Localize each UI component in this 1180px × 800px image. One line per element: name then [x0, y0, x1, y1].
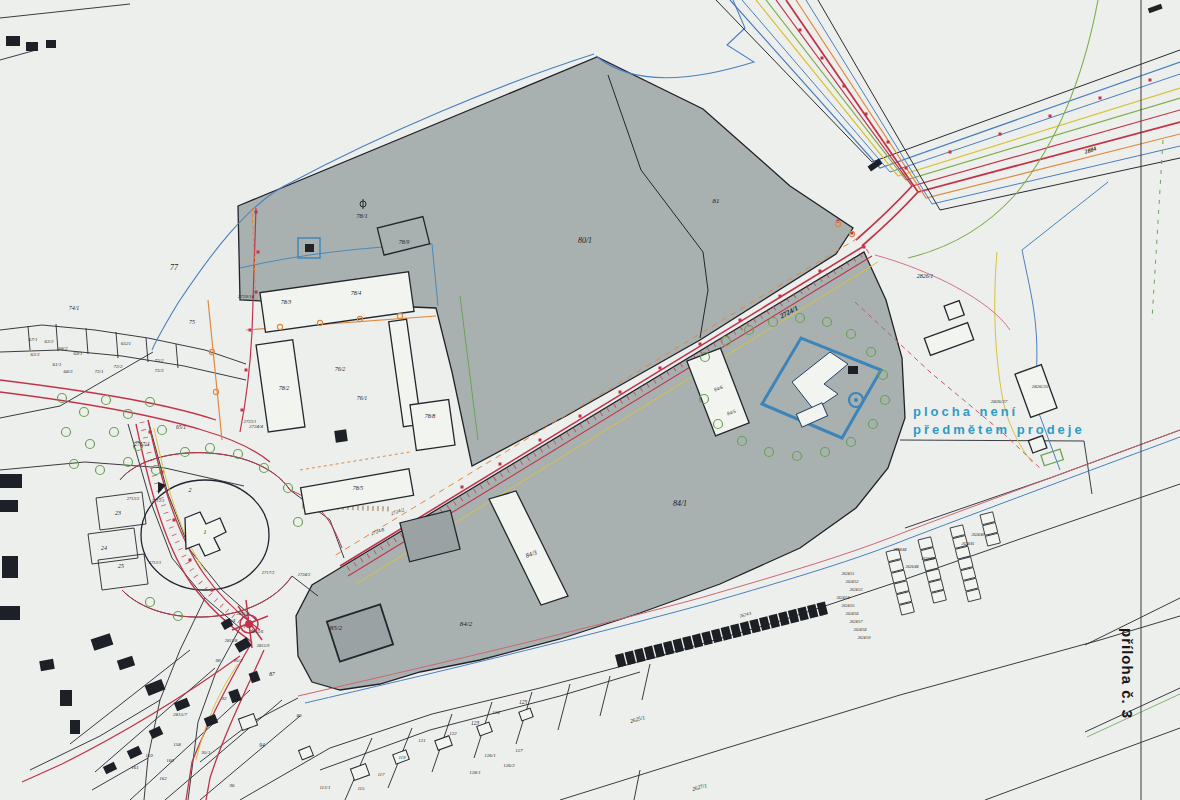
parcel-label: 127	[515, 748, 523, 753]
parcel-label: 2723/1	[244, 419, 257, 424]
utility-post-icon	[819, 270, 822, 273]
parcel-label: 2724/2	[390, 507, 405, 516]
utility-post-icon	[843, 85, 846, 88]
parcel-label: 78/3	[281, 299, 292, 305]
parcel-label: 117	[377, 772, 385, 777]
parcel-label: 73/2	[155, 358, 164, 363]
utility-post-icon	[211, 589, 214, 592]
garage-block	[749, 619, 760, 634]
utility-post-icon	[699, 343, 702, 346]
garage-block	[673, 638, 684, 653]
tree-icon	[96, 466, 105, 475]
utility-post-icon	[255, 291, 258, 294]
building-right-3	[1015, 365, 1057, 418]
utility-post-icon	[257, 251, 260, 254]
parcel-label: 73/1	[95, 369, 104, 374]
parcel-label: 95/2	[234, 658, 243, 663]
building-footprint	[0, 606, 20, 620]
parcel-label: 2627/1	[691, 782, 708, 792]
parcel-label: 90	[216, 658, 222, 663]
corridor-blue-2	[742, 0, 1180, 172]
parcel-label: 123	[471, 720, 480, 726]
parcel-label: 2713/1	[149, 560, 162, 565]
parcel-label: 73/3	[155, 368, 164, 373]
garage-block	[663, 641, 674, 656]
parcel-label: 2717/1	[134, 441, 150, 447]
scan-edge-line	[1140, 0, 1142, 800]
building-right-2	[944, 301, 964, 321]
cadastral-map-scan: 80/1817774/17578/178/92729/1478/378/478/…	[0, 0, 1180, 800]
utility-post-icon	[799, 29, 802, 32]
utility-post-icon	[1099, 97, 1102, 100]
parcel-label: 2624/54	[836, 595, 849, 600]
garage-block	[615, 653, 626, 668]
parcel-label: 2717/3	[262, 570, 275, 575]
parcel-label: 2624/52	[845, 579, 858, 584]
utility-post-icon	[1149, 79, 1152, 82]
utility-post-icon	[161, 471, 164, 474]
parcel-label: 115	[357, 786, 365, 791]
parcel-label: 162	[159, 776, 167, 781]
parcel-label: 74/1	[69, 305, 80, 311]
utility-post-icon	[949, 151, 952, 154]
parcel-label: 2624/44	[893, 547, 906, 552]
parcel-label: 69/1	[74, 351, 83, 356]
parcel-label: 113/1	[319, 785, 330, 790]
not-for-sale-note-line1: plocha není	[913, 404, 1018, 419]
corridor-branch	[856, 186, 918, 246]
parcel-label: 84/2	[460, 620, 473, 628]
parcel-label: 2	[189, 487, 192, 493]
utility-post-icon	[779, 295, 782, 298]
parcel-label: 68/3	[64, 369, 73, 374]
utility-node-icon	[397, 313, 402, 318]
parcel-label: 94	[259, 742, 265, 748]
parcel-label: 125	[519, 699, 528, 705]
parcel-label: 2815/2	[237, 611, 250, 616]
utility-post-icon	[241, 409, 244, 412]
house-outline	[435, 736, 453, 751]
green-right-curve	[908, 0, 1098, 258]
parcel-label: 72/2	[114, 364, 123, 369]
parcel-label: 2815/6	[251, 629, 264, 634]
garage-block	[644, 646, 655, 661]
parcel-label: 78/8	[425, 413, 436, 419]
garage-block	[797, 606, 808, 621]
parcel-label: 2626/49	[921, 556, 934, 561]
parcel-label: 2724/4	[249, 424, 263, 429]
building-footprint	[127, 746, 143, 760]
attachment-number-note: příloha č. 3	[1119, 628, 1136, 719]
parcel-label: 128/1	[469, 770, 480, 775]
parcel-label: 160	[166, 758, 174, 763]
utility-post-icon	[659, 367, 662, 370]
parcel-label: 2724/8	[370, 527, 385, 536]
green-shed	[1041, 449, 1063, 466]
parcel-label: 67/1	[29, 337, 38, 342]
parcel-label: 119	[398, 755, 406, 760]
parcel-label: 76/2	[335, 366, 346, 372]
parcel-label: 2724/3	[298, 572, 311, 577]
utility-post-icon	[149, 431, 152, 434]
parcel-label: 126/2	[503, 763, 515, 768]
boundaries-right	[900, 440, 1092, 494]
utility-post-icon	[619, 391, 622, 394]
parcel-label: 78/4	[351, 290, 362, 296]
building-right-1	[924, 323, 973, 356]
utility-post-icon	[579, 415, 582, 418]
garage-block	[682, 636, 693, 651]
building-right-4	[1028, 436, 1047, 453]
compound-symbol	[848, 366, 858, 374]
garage-block	[788, 609, 799, 624]
not-for-sale-note-line2: předmětem prodeje	[913, 422, 1085, 437]
garage-block	[769, 614, 780, 629]
parcel-label: 2624/55	[841, 603, 854, 608]
garage-block	[740, 621, 751, 636]
parcel-label: 88	[297, 713, 303, 718]
building-footprint	[70, 720, 80, 734]
utility-post-icon	[739, 319, 742, 322]
parcel-label: 124	[492, 710, 500, 715]
parcel-label: 2624/59	[857, 635, 870, 640]
parcel-label: 24	[101, 545, 107, 551]
utility-post-icon	[821, 57, 824, 60]
utility-post-icon	[1049, 115, 1052, 118]
utility-post-icon	[905, 167, 908, 170]
parcel-label: 2625/1	[629, 714, 646, 724]
tree-icon	[80, 408, 89, 417]
parcel-label: 87	[269, 671, 275, 677]
parcel-label: 158	[173, 742, 181, 747]
parcel-label: 2624/51	[841, 571, 854, 576]
parcel-label: 61/1	[53, 362, 62, 367]
parcel-label: 2713/3	[152, 498, 165, 503]
parcel-label: 95/1	[202, 750, 211, 755]
parcel-label: 2815/9	[257, 643, 270, 648]
parcel-label: 77	[170, 263, 179, 272]
tree-icon	[152, 466, 161, 475]
parcel-label: 2626/48	[905, 564, 918, 569]
building-footprint	[60, 690, 72, 706]
utility-post-icon	[863, 246, 866, 249]
utility-post-icon	[499, 463, 502, 466]
building-footprint	[228, 689, 242, 704]
parcel-label: 63/3	[31, 352, 40, 357]
garage-block	[759, 616, 770, 631]
parcel-label: 121	[418, 738, 426, 743]
tree-icon	[294, 518, 303, 527]
parcel-label: 159	[145, 753, 153, 758]
parcel-label: 84/1	[673, 499, 687, 508]
parcel-label: 2624/58	[853, 627, 866, 632]
parcel-label: 63/2	[45, 339, 54, 344]
parcel-label: 1	[204, 529, 207, 535]
house-outline	[299, 746, 314, 760]
parcel-label: 78/2	[279, 385, 290, 391]
utility-post-icon	[173, 519, 176, 522]
house-outline	[238, 714, 257, 731]
parcel-label: 6521	[121, 341, 131, 346]
garage-block	[817, 601, 828, 616]
building-footprint	[26, 42, 38, 51]
parcel-label: 65/1	[176, 424, 186, 430]
garage-block	[778, 611, 789, 626]
parcel-label: 2624/41	[961, 541, 974, 546]
garage-block	[625, 650, 636, 665]
parcel-label: 2815/4	[223, 618, 236, 623]
garage-block	[721, 626, 732, 641]
parcel-label: 78/9	[399, 239, 410, 245]
parcel-label: 2815/7	[173, 712, 187, 717]
tree-icon	[124, 410, 133, 419]
parcel-label: 2624/57	[849, 619, 863, 624]
utility-post-icon	[887, 141, 890, 144]
parcel-label: 78/1	[356, 212, 368, 219]
building-footprint	[0, 500, 18, 512]
building-footprint	[39, 659, 55, 671]
parcel-label: 68/2	[59, 346, 68, 351]
parcel-label: 2729/14	[238, 294, 255, 299]
tree-icon	[86, 440, 95, 449]
parcel-label: 23	[115, 510, 121, 516]
utility-post-icon	[189, 559, 192, 562]
utility-post-icon	[539, 439, 542, 442]
garage-block	[653, 643, 664, 658]
parcel-label: 2815/8	[225, 638, 238, 643]
tree-icon	[206, 444, 215, 453]
building-footprint	[204, 714, 218, 727]
garage-block	[807, 604, 818, 619]
house-outline	[519, 708, 533, 721]
parcel-label: 76/1	[357, 395, 368, 401]
pink-right-boundary	[875, 255, 1010, 330]
tree-icon	[181, 448, 190, 457]
compound-circle-dot	[854, 398, 858, 402]
parcel-label: 85/2	[330, 624, 343, 632]
tree-icon	[158, 426, 167, 435]
parcel-label: 75	[189, 319, 195, 325]
parcel-label: 2624/1	[739, 611, 752, 619]
utility-post-icon	[999, 133, 1002, 136]
building-78-8	[410, 399, 455, 450]
utility-node-icon	[213, 389, 218, 394]
building-footprint	[334, 429, 348, 443]
parcel-label: 126/1	[484, 753, 495, 758]
utility-post-icon	[461, 486, 464, 489]
parcel-label: 2624/40	[971, 532, 984, 537]
blue-square-inner	[305, 244, 314, 252]
building-footprint	[117, 656, 135, 670]
utility-post-icon	[255, 211, 258, 214]
parcel-label: 161	[131, 765, 139, 770]
utility-post-icon	[245, 369, 248, 372]
building-footprint	[2, 556, 18, 578]
parcel-label: 157	[151, 729, 159, 734]
scan-speck	[1148, 4, 1163, 13]
parcel-label: 81	[713, 197, 720, 205]
utility-post-icon	[249, 329, 252, 332]
parcel-label: 80/1	[578, 236, 592, 245]
tree-icon	[110, 428, 119, 437]
parcel-label: 122	[449, 731, 457, 736]
building-footprint	[46, 40, 56, 48]
parcel-label: 2624/53	[849, 587, 862, 592]
house-outline	[350, 764, 369, 781]
utility-post-icon	[865, 113, 868, 116]
tree-icon	[146, 598, 155, 607]
corridor-red-2	[786, 0, 1180, 192]
map-canvas: 80/1817774/17578/178/92729/1478/378/478/…	[0, 0, 1180, 800]
garage-block	[730, 624, 741, 639]
tree-icon	[70, 460, 79, 469]
corridor-blue-3	[806, 0, 1180, 204]
parcel-label: 92	[222, 696, 228, 701]
parcel-label: 2826/1	[917, 273, 934, 279]
building-footprint	[6, 36, 20, 46]
building-footprint	[0, 474, 22, 488]
green-edge-dashes	[1152, 140, 1163, 320]
parcel-label: 2624/56	[845, 611, 858, 616]
tree-icon	[62, 428, 71, 437]
parcel-label: 2713/2	[127, 496, 140, 501]
parcel-label: 96	[230, 783, 236, 788]
parcel-label: 2826/35	[1032, 384, 1049, 389]
garage-block	[634, 648, 645, 663]
tree-icon	[102, 396, 111, 405]
building-footprint	[91, 633, 114, 651]
parcel-label: 78/5	[353, 485, 364, 491]
parcel-label: 25	[118, 563, 124, 569]
